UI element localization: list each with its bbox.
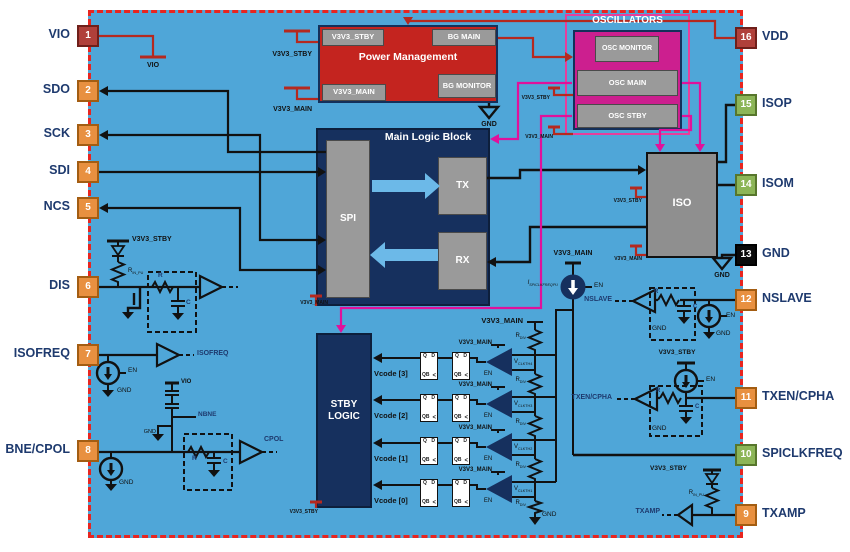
txamp-signal-label: TXAMP — [628, 508, 660, 515]
flipflop: QDQB< — [452, 437, 470, 465]
gnd-label: GND — [716, 331, 730, 338]
gnd-label: GND — [117, 388, 131, 395]
c-label: C — [695, 404, 699, 410]
pin-label-vio: VIO — [0, 28, 70, 41]
v3v3-main-regulator: V3V3_MAIN — [322, 84, 386, 101]
v3v3-main-label: V3V3_MAIN — [250, 106, 312, 113]
gnd-label: GND — [707, 272, 737, 279]
pin-label-isofreq: ISOFREQ — [0, 347, 70, 360]
v3v3-main-label: V3V3_MAIN — [463, 317, 523, 325]
r-label: R — [656, 388, 660, 394]
flipflop: QDQB< — [420, 479, 438, 507]
flipflop: QDQB< — [452, 352, 470, 380]
ispiclkfreqpu-label: ISPICLKFREQPU — [496, 280, 558, 288]
tx-box: TX — [438, 157, 487, 215]
en-label: EN — [477, 456, 499, 462]
v3v3-main-label: V3V3_MAIN — [511, 135, 553, 140]
v3v3-stby-label: V3V3_STBY — [272, 510, 318, 515]
pin-label-sck: SCK — [0, 127, 70, 140]
bg-monitor-box: BG MONITOR — [438, 74, 496, 98]
main-logic-title: Main Logic Block — [368, 132, 488, 143]
flipflop: QDQB< — [420, 394, 438, 422]
pin-label-bne-cpol: BNE/CPOL — [0, 443, 70, 456]
v3v3-main-label: V3V3_MAIN — [282, 301, 328, 306]
en-label: EN — [706, 377, 715, 384]
pin-bne-cpol: 8 — [77, 440, 99, 462]
pin-label-gnd: GND — [762, 247, 790, 260]
pin-label-sdo: SDO — [0, 83, 70, 96]
vclkth1-label: VCLKTH1 — [514, 486, 532, 494]
v3v3-main-label: V3V3_MAIN — [444, 382, 492, 388]
pin-isop: 15 — [735, 94, 757, 116]
rx-box: RX — [438, 232, 487, 290]
pin-vdd: 16 — [735, 27, 757, 49]
vio-label: VIO — [181, 379, 191, 385]
bg-main-box: BG MAIN — [432, 29, 496, 46]
block-diagram: Power Management V3V3_STBY BG MAIN V3V3_… — [0, 0, 850, 552]
spi-box: SPI — [326, 140, 370, 298]
osc-stby-box: OSC STBY — [577, 104, 678, 128]
osc-main-box: OSC MAIN — [577, 70, 678, 96]
pin-label-isop: ISOP — [762, 97, 792, 110]
gnd-label: GND — [542, 512, 556, 519]
v3v3-stby-regulator: V3V3_STBY — [322, 29, 384, 46]
flipflop: QDQB< — [452, 479, 470, 507]
gnd-label: GND — [119, 480, 133, 487]
pin-nslave: 12 — [735, 289, 757, 311]
v3v3-stby-label: V3V3_STBY — [132, 236, 172, 243]
pin-sdo: 2 — [77, 80, 99, 102]
c-label: C — [186, 300, 191, 307]
pin-txen-cpha: 11 — [735, 387, 757, 409]
stby-logic-title-2: LOGIC — [316, 412, 372, 423]
pin-label-dis: DIS — [0, 279, 70, 292]
pin-ncs: 5 — [77, 197, 99, 219]
pin-label-spiclkfreq: SPICLKFREQ — [762, 447, 843, 460]
isofreq-signal-label: ISOFREQ — [197, 350, 229, 357]
en-label: EN — [477, 498, 499, 504]
r-label: R — [654, 289, 658, 295]
iso-title: ISO — [646, 198, 718, 210]
r-label: R — [192, 456, 197, 463]
gnd-label: GND — [136, 430, 156, 436]
vclkth3-label: VCLKTH3 — [514, 401, 532, 409]
pin-sdi: 4 — [77, 161, 99, 183]
c-label: C — [693, 304, 697, 310]
vcode0-label: Vcode [0] — [374, 497, 420, 505]
power-management-title: Power Management — [318, 52, 498, 63]
cpol-signal-label: CPOL — [264, 436, 283, 443]
pin-label-txen-cpha: TXEN/CPHA — [762, 390, 834, 403]
rdiv-label: RDIV — [498, 500, 526, 508]
rdiv-label: RDIV — [498, 419, 526, 427]
pin-gnd: 13 — [735, 244, 757, 266]
pin-isom: 14 — [735, 174, 757, 196]
pin-label-vdd: VDD — [762, 30, 788, 43]
pin-spiclkfreq: 10 — [735, 444, 757, 466]
vcode3-label: Vcode [3] — [374, 370, 420, 378]
pin-sck: 3 — [77, 124, 99, 146]
pin-label-isom: ISOM — [762, 177, 794, 190]
vio-rail-label: VIO — [140, 62, 166, 69]
r-in-pu-label: RIN_PU — [676, 490, 704, 498]
en-label: EN — [477, 413, 499, 419]
vcode1-label: Vcode [1] — [374, 455, 420, 463]
en-label: EN — [477, 371, 499, 377]
flipflop: QDQB< — [420, 352, 438, 380]
flipflop: QDQB< — [420, 437, 438, 465]
pin-dis: 6 — [77, 276, 99, 298]
v3v3-main-label: V3V3_MAIN — [596, 257, 642, 262]
gnd-label: GND — [474, 121, 504, 128]
gnd-label: GND — [652, 426, 666, 433]
en-label: EN — [594, 283, 603, 290]
en-label: EN — [128, 368, 137, 375]
v3v3-main-label: V3V3_MAIN — [444, 467, 492, 473]
v3v3-main-label: V3V3_MAIN — [541, 250, 605, 257]
v3v3-main-label: V3V3_MAIN — [444, 340, 492, 346]
c-label: C — [223, 459, 228, 466]
v3v3-main-label: V3V3_MAIN — [444, 425, 492, 431]
pin-label-txamp: TXAMP — [762, 507, 806, 520]
pin-label-sdi: SDI — [0, 164, 70, 177]
pin-label-ncs: NCS — [0, 200, 70, 213]
pin-isofreq: 7 — [77, 344, 99, 366]
r-label: R — [158, 273, 163, 280]
gnd-label: GND — [652, 326, 666, 333]
r-in-pu-label: RIN_PU — [128, 268, 143, 276]
rdiv-label: RDIV — [498, 333, 526, 341]
stby-logic-title-1: STBY — [316, 400, 372, 411]
v3v3-stby-label: V3V3_STBY — [648, 350, 706, 357]
v3v3-stby-label: V3V3_STBY — [596, 199, 642, 204]
nbne-label: NBNE — [198, 412, 216, 419]
rdiv-label: RDIV — [498, 462, 526, 470]
vclkth2-label: VCLKTH2 — [514, 444, 532, 452]
v3v3-stby-label: V3V3_STBY — [250, 51, 312, 58]
txen-cpha-signal-label: TXEN/CPHA — [556, 394, 612, 401]
nslave-signal-label: NSLAVE — [570, 296, 612, 303]
v3v3-stby-label: V3V3_STBY — [650, 466, 687, 473]
pin-label-nslave: NSLAVE — [762, 292, 812, 305]
osc-monitor-box: OSC MONITOR — [595, 36, 659, 62]
pin-txamp: 9 — [735, 504, 757, 526]
oscillators-title: OSCILLATORS — [565, 16, 690, 27]
en-label: EN — [726, 313, 735, 320]
vcode2-label: Vcode [2] — [374, 412, 420, 420]
pin-vio: 1 — [77, 25, 99, 47]
rdiv-label: RDIV — [498, 377, 526, 385]
vclkth4-label: VCLKTH4 — [514, 359, 532, 367]
v3v3-stby-label: V3V3_STBY — [508, 96, 550, 101]
flipflop: QDQB< — [452, 394, 470, 422]
